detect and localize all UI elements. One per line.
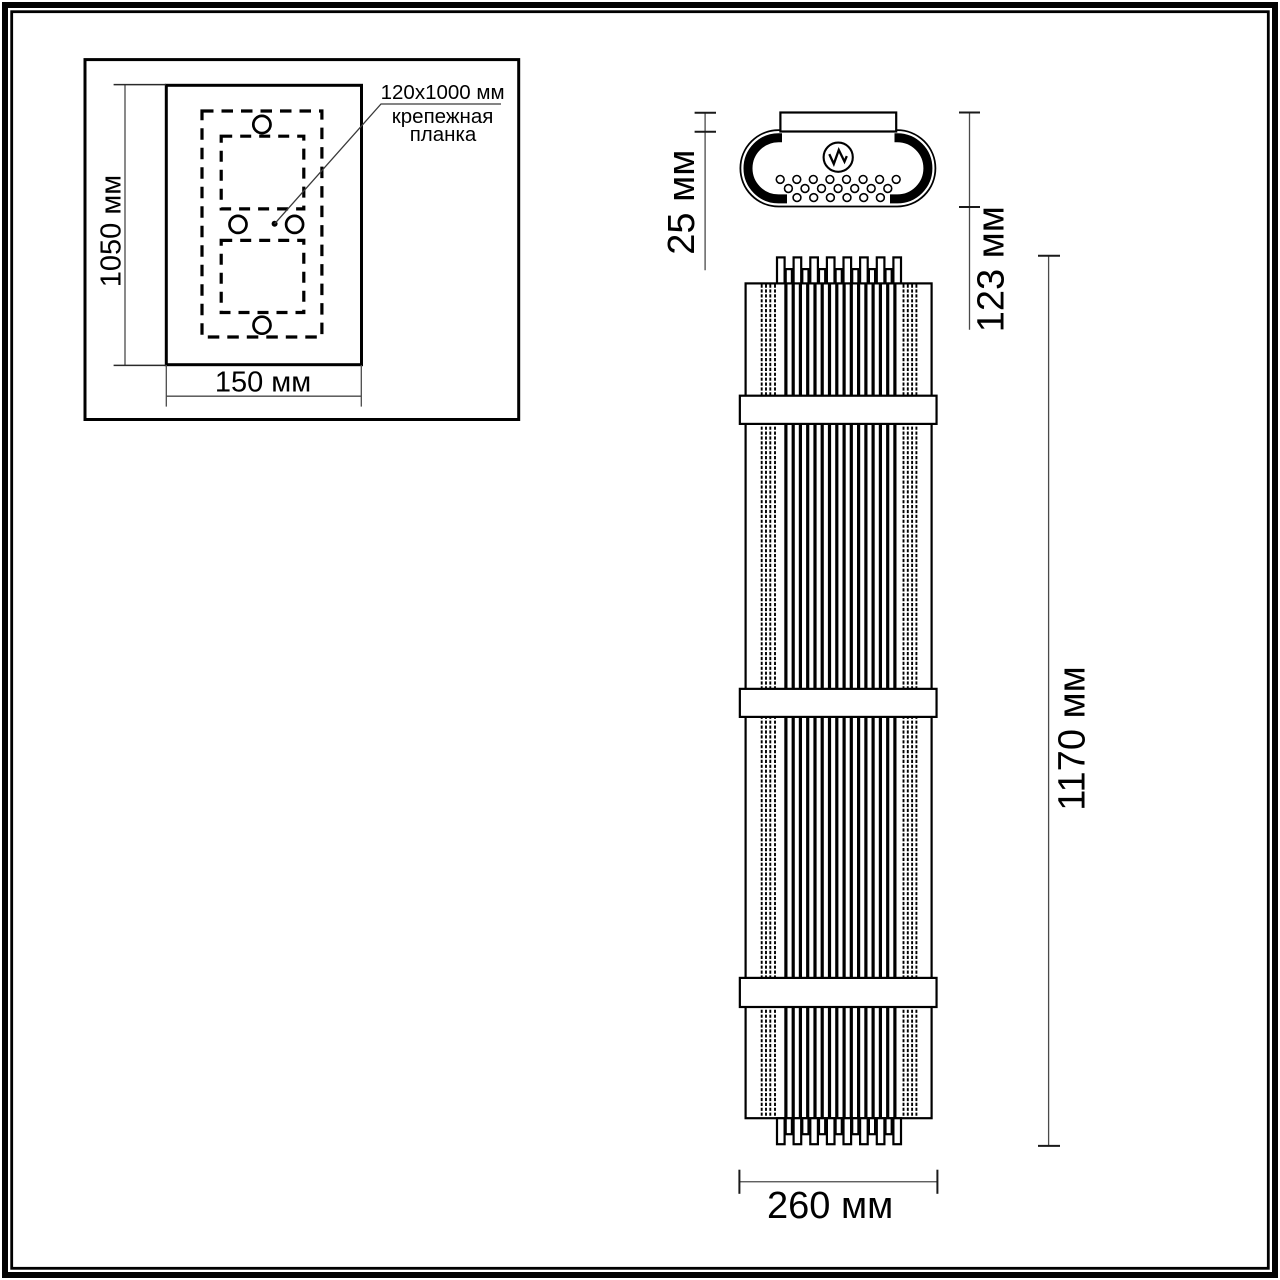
svg-text:1050 мм: 1050 мм xyxy=(95,175,127,287)
svg-text:150 мм: 150 мм xyxy=(215,366,311,398)
svg-text:260 мм: 260 мм xyxy=(767,1185,893,1227)
svg-text:25 мм: 25 мм xyxy=(661,150,703,255)
svg-text:1170 мм: 1170 мм xyxy=(1052,666,1094,811)
svg-text:планка: планка xyxy=(410,123,477,146)
svg-text:123 мм: 123 мм xyxy=(971,206,1013,332)
svg-text:120x1000 мм: 120x1000 мм xyxy=(381,81,505,104)
